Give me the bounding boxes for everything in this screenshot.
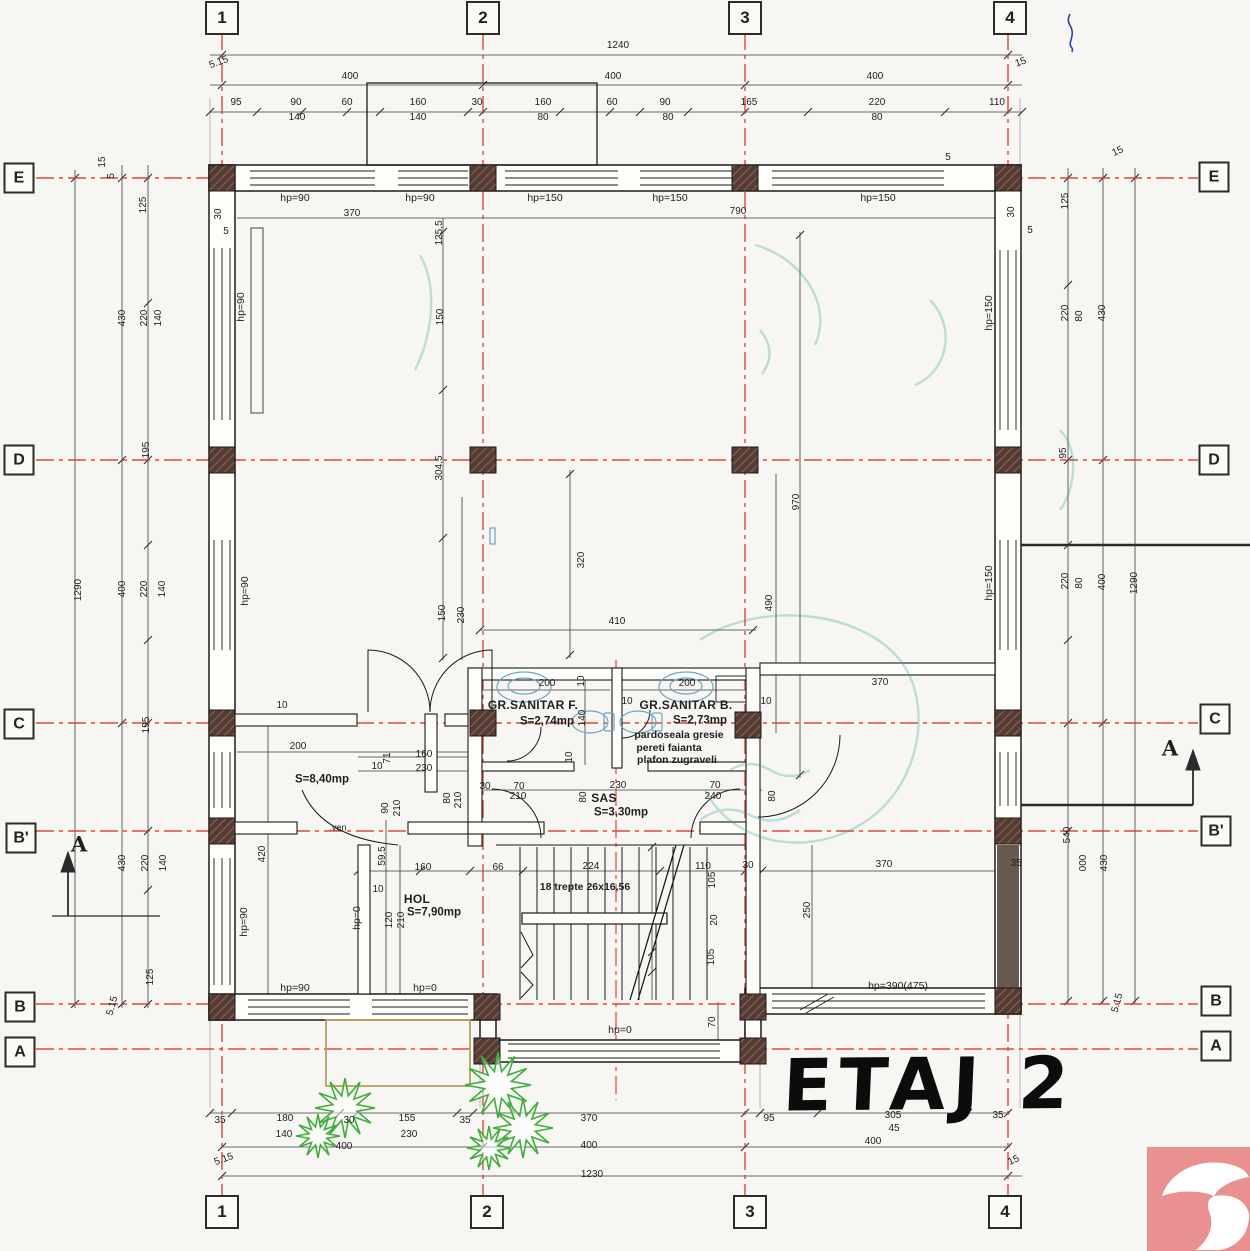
dimension-label: 230 <box>610 781 627 791</box>
grid-bubble-e: E <box>4 163 35 194</box>
window-sill-label: hp=90 <box>405 193 435 204</box>
grid-bubble-b: B <box>1201 986 1232 1017</box>
dimension-label: 140 <box>276 1130 293 1140</box>
dimension-label: 30 <box>742 861 753 871</box>
dimension-label: 125 <box>139 197 149 214</box>
dimension-label: 400 <box>581 1141 598 1151</box>
dimension-label: 160 <box>535 98 552 108</box>
dimension-label: 240 <box>705 792 722 802</box>
dimension-label: 70 <box>708 1016 718 1027</box>
dimension-label: 10 <box>565 751 575 762</box>
dimension-label: 220 <box>1061 305 1071 322</box>
dimension-label: 80 <box>1075 577 1085 588</box>
grid-bubble-a: A <box>1201 1031 1232 1062</box>
dimension-label: 30 <box>471 98 482 108</box>
dimension-label: 10 <box>276 701 287 711</box>
dimension-label: 220 <box>869 98 886 108</box>
dimension-label: 400 <box>867 72 884 82</box>
dimension-label: 80 <box>871 113 882 123</box>
dimension-label: 430 <box>118 855 128 872</box>
window-sill-label: hp=0 <box>413 983 437 994</box>
dimension-label: 220 <box>1061 573 1071 590</box>
dimension-label: 5.15 <box>1111 992 1126 1013</box>
dimension-label: 140 <box>289 113 306 123</box>
dimension-label: 150 <box>438 605 448 622</box>
dimension-label: 5 <box>945 153 951 163</box>
dimension-label: 400 <box>1098 574 1108 591</box>
dimension-label: 1290 <box>74 579 84 601</box>
grid-bubble-4: 4 <box>993 1 1027 35</box>
annotation-overlay: ETAJ 2 12405.154004004001595906016030160… <box>0 0 1250 1251</box>
dimension-label: 110 <box>989 98 1005 108</box>
grid-bubble-bp: B' <box>1201 816 1232 847</box>
window-sill-label: hp=150 <box>984 565 995 600</box>
dimension-label: 10 <box>577 675 587 686</box>
dimension-label: 90 <box>659 98 670 108</box>
room-area: S=7,90mp <box>407 907 461 919</box>
dimension-label: 000 <box>1079 855 1089 872</box>
dimension-label: 410 <box>609 617 626 627</box>
dimension-label: 210 <box>397 912 407 929</box>
dimension-label: 66 <box>492 863 503 873</box>
dimension-label: 95 <box>230 98 241 108</box>
dimension-label: 15 <box>1007 1154 1021 1168</box>
dimension-label: 370 <box>581 1114 598 1124</box>
dimension-label: 90 <box>381 802 391 813</box>
dimension-label: 140 <box>159 855 169 872</box>
dimension-label: 400 <box>605 72 622 82</box>
grid-bubble-3: 3 <box>733 1195 767 1229</box>
dimension-label: 200 <box>539 679 556 689</box>
dimension-label: 5 <box>1027 226 1033 236</box>
dimension-label: 160 <box>416 750 433 760</box>
dimension-label: 1230 <box>581 1170 603 1180</box>
grid-bubble-1: 1 <box>205 1 239 35</box>
dimension-label: 70 <box>709 781 720 791</box>
finish-note: pereti faianta <box>636 743 701 754</box>
dimension-label: 400 <box>342 72 359 82</box>
dimension-label: 80 <box>662 113 673 123</box>
stairs-note: 18 trepte 26x16,56 <box>540 882 630 893</box>
dimension-label: 230 <box>416 764 433 774</box>
dimension-label: 140 <box>410 113 427 123</box>
dimension-label: 80 <box>1075 310 1085 321</box>
grid-bubble-d: D <box>4 445 35 476</box>
window-sill-label: hp=150 <box>652 193 687 204</box>
vent-note: .ven <box>329 824 346 833</box>
dimension-label: 30 <box>214 208 224 219</box>
section-letter: A <box>71 834 87 855</box>
grid-bubble-d: D <box>1199 445 1230 476</box>
dimension-label: 35 <box>1010 859 1021 869</box>
dimension-label: 80 <box>443 792 453 803</box>
dimension-label: 30 <box>1007 206 1017 217</box>
dimension-label: 224 <box>583 862 600 872</box>
dimension-label: 20 <box>710 914 720 925</box>
dimension-label: 1290 <box>1130 572 1140 594</box>
dimension-label: 430 <box>1098 305 1108 322</box>
dimension-label: 80 <box>579 791 589 802</box>
grid-bubble-2: 2 <box>470 1195 504 1229</box>
dimension-label: 105 <box>708 872 718 889</box>
dimension-label: 210 <box>510 792 527 802</box>
dimension-label: 5 <box>223 227 229 237</box>
dimension-label: 195 <box>142 442 152 459</box>
grid-bubble-4: 4 <box>988 1195 1022 1229</box>
dimension-label: 5 <box>107 173 117 179</box>
grid-bubble-c: C <box>1200 704 1231 735</box>
dimension-label: 125 <box>146 969 156 986</box>
dimension-label: 210 <box>454 792 464 809</box>
dimension-label: 95 <box>763 1114 774 1124</box>
dimension-label: 15 <box>1111 145 1125 159</box>
dimension-label: 90 <box>290 98 301 108</box>
window-sill-label: hp=0 <box>608 1025 632 1036</box>
dimension-label: 160 <box>410 98 427 108</box>
window-sill-label: hp=90 <box>239 907 250 937</box>
room-area: S=2,74mp <box>520 716 574 728</box>
dimension-label: 30 <box>479 782 490 792</box>
dimension-label: 60 <box>606 98 617 108</box>
dimension-label: 5.15 <box>106 995 121 1016</box>
dimension-label: 35 <box>214 1116 225 1126</box>
grid-bubble-c: C <box>4 709 35 740</box>
window-sill-label: hp=150 <box>860 193 895 204</box>
window-sill-label: hp=90 <box>280 983 310 994</box>
dimension-label: 15 <box>98 156 108 167</box>
room-name: GR.SANITAR F. <box>488 699 578 711</box>
dimension-label: 5.15 <box>208 55 230 71</box>
dimension-label: 430 <box>118 310 128 327</box>
dimension-label: 970 <box>792 494 802 511</box>
dimension-label: 540 <box>1063 827 1073 844</box>
dimension-label: 10 <box>621 697 632 707</box>
dimension-label: 220 <box>140 310 150 327</box>
dimension-label: 304.5 <box>435 455 445 480</box>
dimension-label: 320 <box>577 552 587 569</box>
dimension-label: 230 <box>457 607 467 624</box>
dimension-label: 195 <box>142 717 152 734</box>
grid-bubble-2: 2 <box>466 1 500 35</box>
room-area: S=2,73mp <box>673 715 727 727</box>
grid-bubble-1: 1 <box>205 1195 239 1229</box>
dimension-label: 155 <box>399 1114 416 1124</box>
dimension-label: 80 <box>768 790 778 801</box>
dimension-label: 370 <box>876 860 893 870</box>
dimension-label: 140 <box>158 581 168 598</box>
dimension-label: 220 <box>141 855 151 872</box>
dimension-label: 165 <box>741 98 758 108</box>
room-area: S=3,30mp <box>594 807 648 819</box>
dimension-label: 125 <box>1061 193 1071 210</box>
dimension-label: 400 <box>865 1137 882 1147</box>
dimension-label: 59.5 <box>378 846 388 865</box>
dimension-label: 400 <box>336 1142 353 1152</box>
dimension-label: 1240 <box>607 41 629 51</box>
dimension-label: 305 <box>885 1111 902 1121</box>
dimension-label: 150 <box>436 309 446 326</box>
dimension-label: 30 <box>343 1116 354 1126</box>
dimension-label: 35 <box>459 1116 470 1126</box>
window-sill-label: hp=90 <box>236 292 247 322</box>
window-sill-label: hp=90 <box>240 576 251 606</box>
dimension-label: 95 <box>1059 447 1069 458</box>
dimension-label: 80 <box>537 113 548 123</box>
grid-bubble-3: 3 <box>728 1 762 35</box>
dimension-label: 140 <box>154 310 164 327</box>
floor-plan-canvas: ETAJ 2 12405.154004004001595906016030160… <box>0 0 1250 1251</box>
dimension-label: 370 <box>872 678 889 688</box>
room-name: SAS <box>591 792 617 804</box>
dimension-label: 180 <box>277 1114 294 1124</box>
dimension-label: 790 <box>730 207 747 217</box>
dimension-label: 120 <box>385 912 395 929</box>
dimension-label: 250 <box>803 902 813 919</box>
dimension-label: 370 <box>344 209 361 219</box>
room-name: HOL <box>404 893 430 905</box>
finish-note: pardoseala gresie <box>634 730 723 741</box>
dimension-label: 71 <box>383 752 393 763</box>
dimension-label: 125.5 <box>435 220 445 245</box>
dimension-label: 400 <box>118 581 128 598</box>
dimension-label: 10 <box>760 697 771 707</box>
dimension-label: 230 <box>401 1130 418 1140</box>
room-area: S=8,40mp <box>295 774 349 786</box>
dimension-label: 60 <box>341 98 352 108</box>
grid-bubble-a: A <box>5 1037 36 1068</box>
dimension-label: 45 <box>888 1124 899 1134</box>
window-sill-label: hp=90 <box>280 193 310 204</box>
grid-bubble-bp: B' <box>6 823 37 854</box>
section-letter: A <box>1162 738 1178 759</box>
dimension-label: 200 <box>290 742 307 752</box>
dimension-label: 15 <box>1014 56 1028 69</box>
dimension-label: 10 <box>372 885 383 895</box>
dimension-label: 490 <box>765 595 775 612</box>
window-sill-label: hp=0 <box>352 906 363 930</box>
dimension-label: 210 <box>393 800 403 817</box>
dimension-label: 160 <box>415 863 432 873</box>
dimension-label: 35 <box>992 1111 1003 1121</box>
room-name: GR.SANITAR B. <box>639 699 732 711</box>
dimension-label: 420 <box>258 846 268 863</box>
dimension-label: 430 <box>1100 855 1110 872</box>
dimension-label: 5.15 <box>213 1152 235 1168</box>
grid-bubble-b: B <box>5 992 36 1023</box>
floor-title: ETAJ 2 <box>781 1041 1125 1128</box>
grid-bubble-e: E <box>1199 162 1230 193</box>
dimension-label: 10 <box>371 762 382 772</box>
window-sill-label: hp=150 <box>527 193 562 204</box>
window-sill-label: hp=390(475) <box>868 981 928 992</box>
finish-note: plafon zugraveli <box>637 755 717 766</box>
dimension-label: 105 <box>707 949 717 966</box>
dimension-label: 200 <box>679 679 696 689</box>
window-sill-label: hp=150 <box>984 295 995 330</box>
dimension-label: 140 <box>578 710 588 727</box>
dimension-label: 220 <box>140 581 150 598</box>
